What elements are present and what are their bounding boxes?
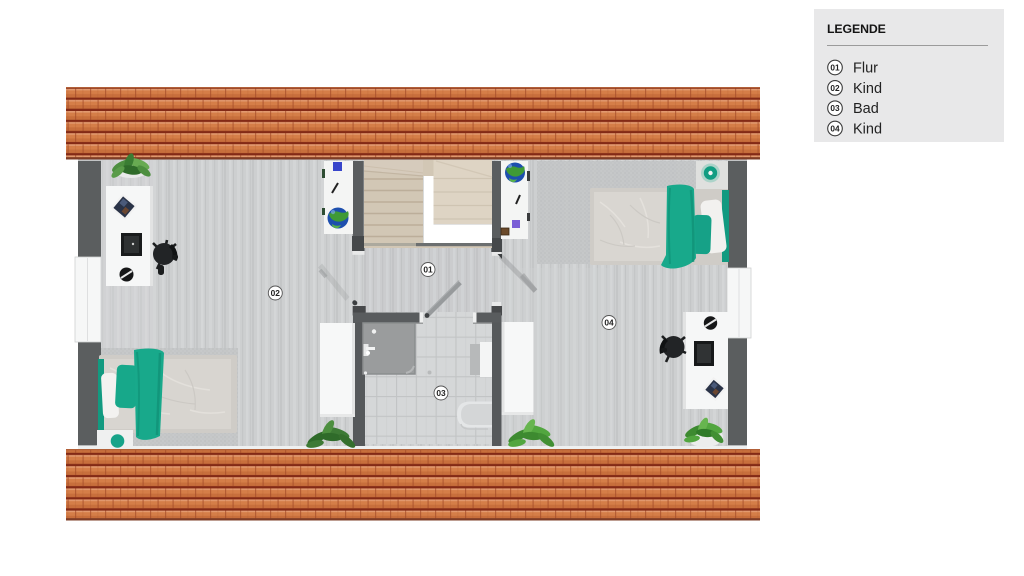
svg-text:03: 03 (830, 103, 840, 113)
svg-text:04: 04 (830, 124, 840, 134)
svg-text:Kind: Kind (853, 81, 882, 97)
svg-text:04: 04 (604, 317, 614, 327)
svg-text:03: 03 (436, 388, 446, 398)
svg-text:02: 02 (830, 83, 840, 93)
svg-text:01: 01 (423, 264, 433, 274)
svg-text:Kind: Kind (853, 122, 882, 138)
svg-text:02: 02 (271, 288, 281, 298)
svg-text:01: 01 (830, 63, 840, 73)
svg-text:LEGENDE: LEGENDE (827, 22, 886, 36)
svg-text:Bad: Bad (853, 101, 879, 117)
svg-text:Flur: Flur (853, 61, 878, 77)
